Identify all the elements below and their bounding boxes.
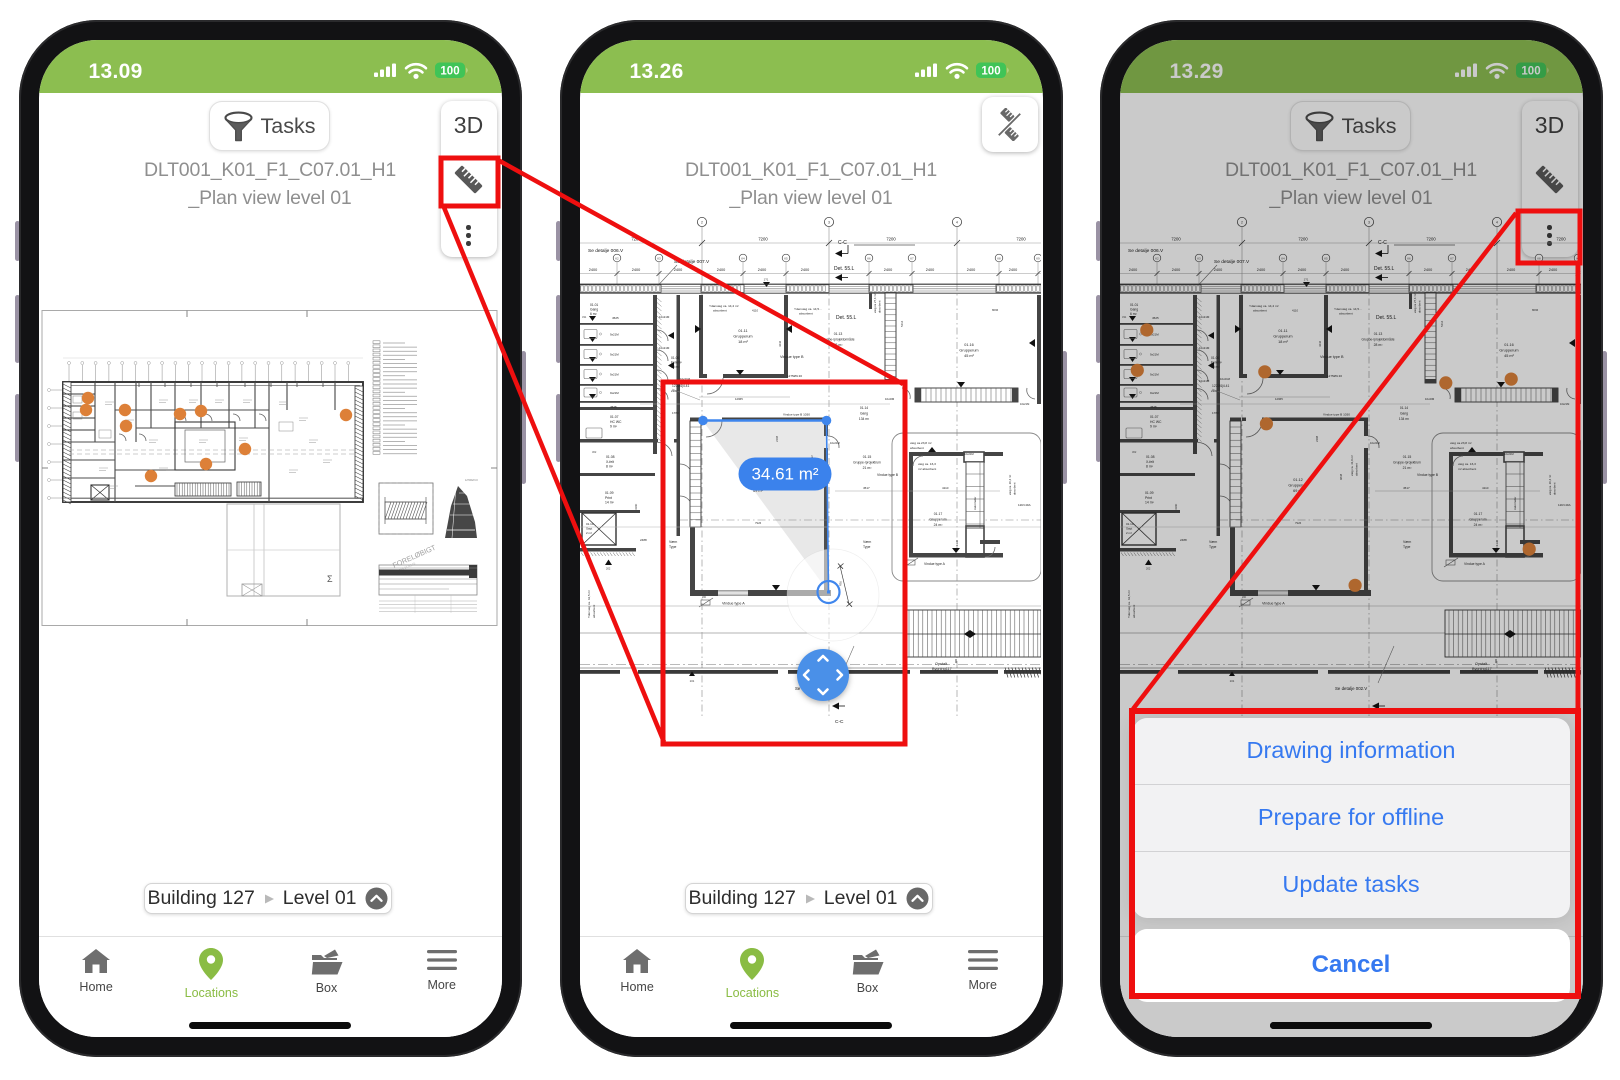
svg-text:01.13: 01.13 xyxy=(833,332,842,336)
svg-text:2400: 2400 xyxy=(673,268,681,272)
svg-text:2400: 2400 xyxy=(883,268,891,272)
svg-text:01.14: 01.14 xyxy=(859,406,867,410)
svg-text:1270ßⅤ2.0Ⅰ: 1270ßⅤ2.0Ⅰ xyxy=(465,479,478,482)
svg-text:8 m²: 8 m² xyxy=(606,465,614,469)
svg-text:K2: K2 xyxy=(615,256,619,260)
svg-text:Type: Type xyxy=(669,545,676,549)
svg-text:Værn: Værn xyxy=(669,540,677,544)
svg-text:Værn: Værn xyxy=(863,540,871,544)
svg-text:01.01: 01.01 xyxy=(590,303,598,307)
svg-text:9 m²: 9 m² xyxy=(610,425,618,429)
svg-text:Se detalje 007.V: Se detalje 007.V xyxy=(674,259,710,265)
svg-text:1275Øß.30: 1275Øß.30 xyxy=(787,374,802,378)
svg-text:4110: 4110 xyxy=(752,309,758,313)
svg-text:Opstalt.: Opstalt. xyxy=(935,662,948,666)
svg-text:X-felt: X-felt xyxy=(606,460,614,464)
svg-text:10x21M: 10x21M xyxy=(830,441,840,445)
svg-text:5414: 5414 xyxy=(900,320,904,327)
svg-text:127Øß|4.41: 127Øß|4.41 xyxy=(672,384,690,388)
svg-text:100: 100 xyxy=(440,65,459,77)
svg-text:Vindue type A: Vindue type A xyxy=(924,562,946,566)
svg-text:C-C: C-C xyxy=(838,240,847,246)
svg-text:10x21M: 10x21M xyxy=(964,452,974,456)
svg-text:absorbent: absorbent xyxy=(1012,482,1016,495)
svg-text:10x21M: 10x21M xyxy=(1020,402,1029,406)
svg-text:1763: 1763 xyxy=(672,411,679,415)
svg-text:K4: K4 xyxy=(741,256,745,260)
svg-text:7200: 7200 xyxy=(886,237,896,242)
svg-text:Ydervæg ca. 42,5 m²: Ydervæg ca. 42,5 m² xyxy=(587,590,591,618)
svg-text:2488: 2488 xyxy=(640,538,647,542)
svg-text:3: 3 xyxy=(828,221,830,225)
svg-text:Grupperum: Grupperum xyxy=(733,335,752,339)
svg-text:01.15: 01.15 xyxy=(862,455,871,459)
svg-text:1330: 1330 xyxy=(955,540,959,546)
svg-text:100: 100 xyxy=(981,65,1000,77)
svg-text:2400: 2400 xyxy=(757,268,765,272)
svg-text:134 m²: 134 m² xyxy=(858,417,869,421)
svg-text:10x2ⅠM: 10x2ⅠM xyxy=(885,397,895,401)
svg-text:Print: Print xyxy=(605,496,612,500)
svg-text:01.07: 01.07 xyxy=(610,415,619,419)
svg-text:Ydenvæg ca. 14,5...: Ydenvæg ca. 14,5... xyxy=(794,307,822,311)
svg-text:45 m²: 45 m² xyxy=(964,354,974,358)
svg-text:4110: 4110 xyxy=(942,486,949,490)
svg-text:01.09: 01.09 xyxy=(605,491,614,495)
svg-text:K3: K3 xyxy=(657,256,661,260)
svg-text:absorbent: absorbent xyxy=(592,604,596,618)
svg-text:Type: Type xyxy=(863,545,870,549)
svg-text:2400: 2400 xyxy=(800,268,808,272)
svg-text:9x21M: 9x21M xyxy=(610,353,619,357)
svg-text:Gruppe-/projektrum: Gruppe-/projektrum xyxy=(853,461,881,465)
svg-text:væg ca 27,6 m²: væg ca 27,6 m² xyxy=(873,294,877,313)
svg-text:K9: K9 xyxy=(1036,256,1040,260)
svg-text:101: 101 xyxy=(689,679,694,683)
svg-text:10x21M: 10x21M xyxy=(659,346,670,350)
svg-text:10x21M: 10x21M xyxy=(680,377,691,381)
svg-text:4517: 4517 xyxy=(863,486,870,490)
svg-text:væg ca. 16,3: væg ca. 16,3 xyxy=(918,462,936,466)
svg-text:væg ca. 20,4 m²: væg ca. 20,4 m² xyxy=(1008,475,1012,495)
svg-text:10x21M: 10x21M xyxy=(659,379,670,383)
svg-text:4525: 4525 xyxy=(612,316,619,320)
svg-text:Se detalje 006.V: Se detalje 006.V xyxy=(588,248,624,254)
svg-text:21 m²: 21 m² xyxy=(862,466,872,470)
svg-text:absorbent: absorbent xyxy=(713,309,727,313)
svg-text:Automater: Automater xyxy=(973,497,977,510)
svg-text:331: 331 xyxy=(582,315,587,319)
svg-text:Vindue type B: Vindue type B xyxy=(877,473,899,477)
svg-text:absorbent: absorbent xyxy=(877,300,881,313)
svg-text:m² absorbent: m² absorbent xyxy=(918,467,936,471)
svg-text:7200: 7200 xyxy=(631,237,641,242)
svg-text:10x21M: 10x21M xyxy=(659,315,670,319)
svg-text:18 m²: 18 m² xyxy=(738,340,748,344)
svg-text:7200: 7200 xyxy=(1016,237,1026,242)
svg-text:Ydanvæg ca. 14,4 m²: Ydanvæg ca. 14,4 m² xyxy=(709,304,739,308)
svg-text:01.11: 01.11 xyxy=(738,329,747,333)
svg-text:C-C: C-C xyxy=(835,719,844,725)
svg-text:Vindue type B 1030: Vindue type B 1030 xyxy=(783,413,810,417)
svg-text:12965: 12965 xyxy=(735,397,743,401)
svg-text:6 m²: 6 m² xyxy=(590,312,597,316)
svg-text:2 m²: 2 m² xyxy=(586,531,592,535)
svg-text:4442: 4442 xyxy=(778,340,782,347)
svg-text:2400: 2400 xyxy=(1008,268,1016,272)
svg-text:2400: 2400 xyxy=(588,268,596,272)
svg-text:01.10: 01.10 xyxy=(586,522,594,526)
svg-text:Gang: Gang xyxy=(859,411,867,415)
svg-text:10 m²: 10 m² xyxy=(671,365,680,369)
svg-text:Vindue type B: Vindue type B xyxy=(780,355,804,359)
svg-text:absorbent: absorbent xyxy=(910,446,924,450)
svg-text:01.06: 01.06 xyxy=(671,356,679,360)
svg-text:7926: 7926 xyxy=(755,521,762,525)
svg-text:2: 2 xyxy=(701,221,703,225)
svg-text:9x21M: 9x21M xyxy=(610,373,619,377)
svg-text:01.17: 01.17 xyxy=(933,512,942,516)
svg-text:2400: 2400 xyxy=(966,268,974,272)
svg-text:7200: 7200 xyxy=(758,237,768,242)
svg-text:2400: 2400 xyxy=(631,268,639,272)
svg-text:Bygning117: Bygning117 xyxy=(932,667,952,671)
svg-text:Grupperum: Grupperum xyxy=(959,349,978,353)
svg-text:Gang: Gang xyxy=(590,308,598,312)
svg-text:01.16: 01.16 xyxy=(964,343,974,347)
svg-text:2400: 2400 xyxy=(716,268,724,272)
svg-text:4: 4 xyxy=(956,221,958,225)
svg-text:8096: 8096 xyxy=(992,308,999,312)
svg-text:Σ: Σ xyxy=(327,574,333,584)
svg-text:200: 200 xyxy=(702,596,707,599)
svg-text:Det. 55.L: Det. 55.L xyxy=(836,315,857,321)
svg-text:302: 302 xyxy=(592,450,597,454)
svg-text:K5: K5 xyxy=(784,256,788,260)
svg-text:Vindue type A: Vindue type A xyxy=(722,602,745,606)
svg-text:28 m²: 28 m² xyxy=(833,343,843,347)
svg-text:1?1: 1?1 xyxy=(763,278,768,282)
svg-text:24 m²: 24 m² xyxy=(933,523,943,527)
svg-text:Det. 55.L: Det. 55.L xyxy=(834,266,855,272)
svg-text:2400: 2400 xyxy=(925,268,933,272)
svg-text:4525: 4525 xyxy=(610,405,617,409)
svg-text:væg ca.23,8 m²: væg ca.23,8 m² xyxy=(910,441,932,445)
svg-text:HC WC: HC WC xyxy=(610,420,622,424)
svg-text:4190: 4190 xyxy=(634,503,638,510)
svg-text:K8: K8 xyxy=(997,256,1001,260)
svg-text:9x21M: 9x21M xyxy=(610,333,619,337)
svg-text:Forum³: Forum³ xyxy=(671,361,683,365)
svg-text:202: 202 xyxy=(606,567,611,571)
svg-text:12R×49A: 12R×49A xyxy=(1018,503,1031,507)
svg-text:K7: K7 xyxy=(910,256,914,260)
svg-text:absorbent: absorbent xyxy=(799,312,813,316)
svg-text:Grupperum: Grupperum xyxy=(929,518,946,522)
svg-text:14 m²: 14 m² xyxy=(605,501,615,505)
svg-text:9x21M: 9x21M xyxy=(610,391,619,395)
svg-text:34.61 m²: 34.61 m² xyxy=(751,465,818,484)
svg-text:01.08: 01.08 xyxy=(606,455,615,459)
svg-text:K6: K6 xyxy=(867,256,871,260)
svg-text:Gruppe-/projektområde: Gruppe-/projektområde xyxy=(821,338,854,342)
